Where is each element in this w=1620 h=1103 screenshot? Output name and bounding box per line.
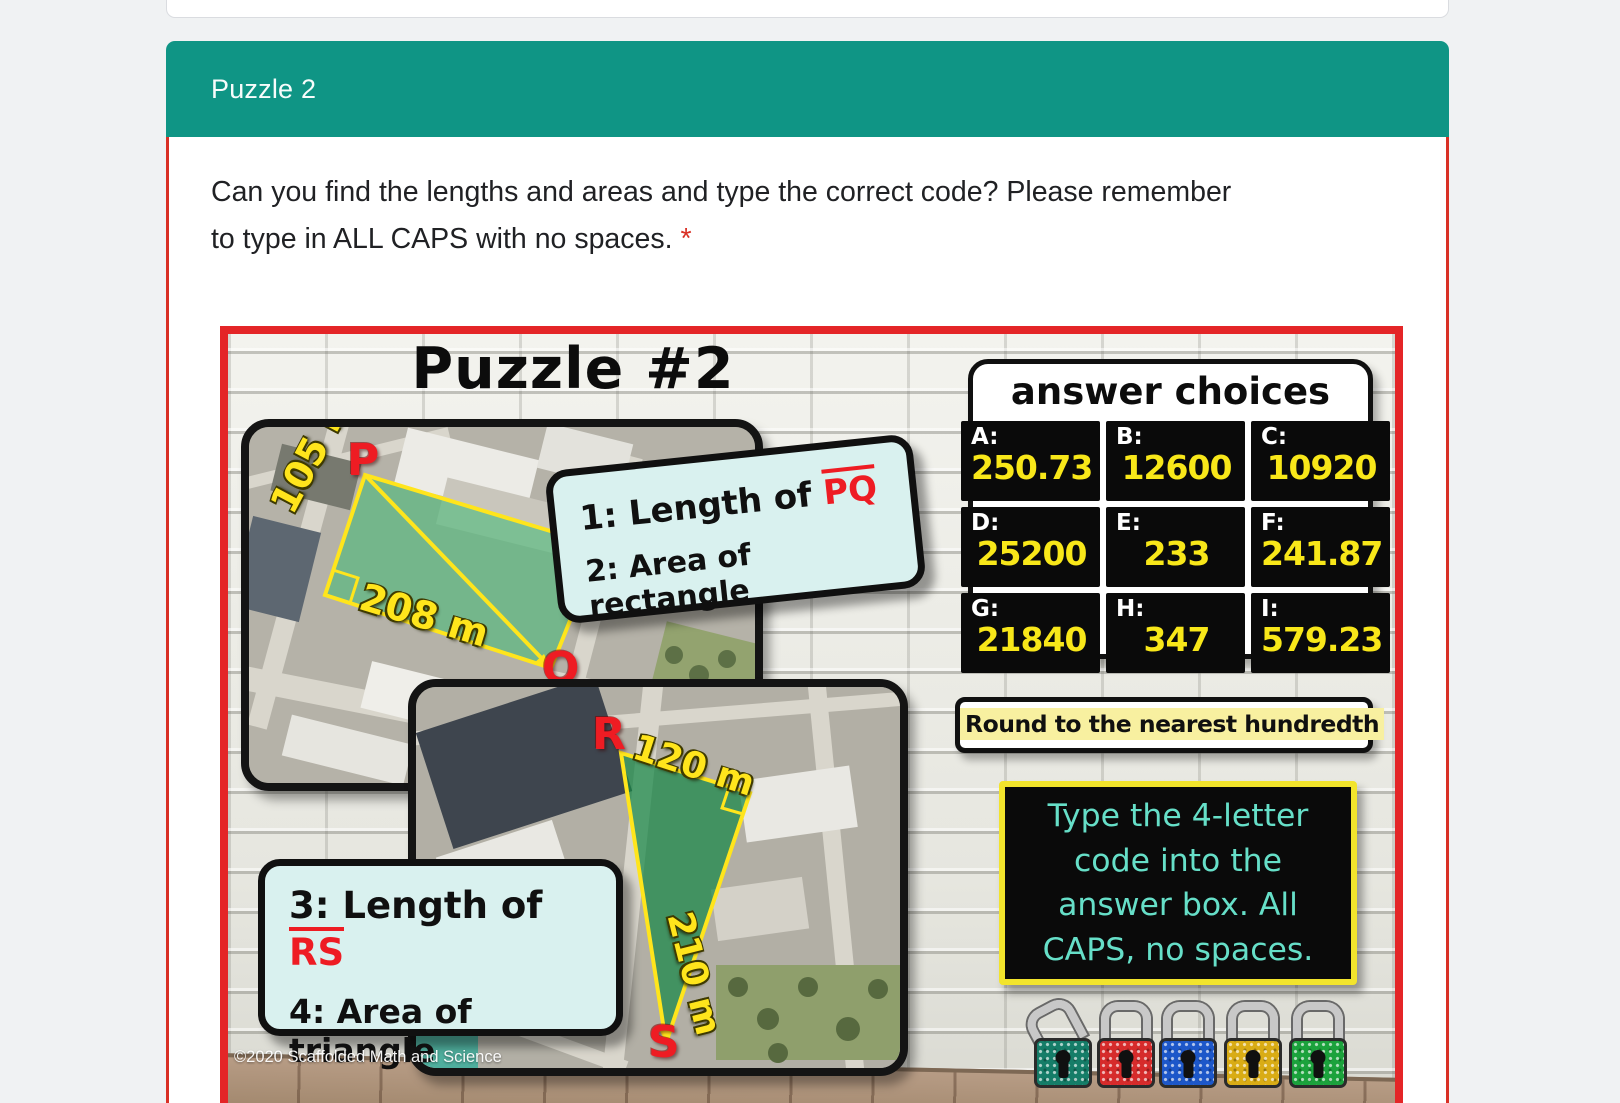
lock-body <box>1034 1038 1092 1088</box>
lock-body <box>1224 1038 1282 1088</box>
answer-cell: F:241.87 <box>1251 507 1390 587</box>
keyhole-icon <box>1119 1050 1134 1065</box>
question-line-2: to type in ALL CAPS with no spaces.* <box>211 216 1391 263</box>
answer-cell: C:10920 <box>1251 421 1390 501</box>
copyright-text: ©2020 Scaffolded Math and Science <box>234 1048 502 1067</box>
keyhole-icon <box>1246 1050 1261 1065</box>
answer-cell: G:21840 <box>961 593 1100 673</box>
answer-cell: I:579.23 <box>1251 593 1390 673</box>
lock-body <box>1159 1038 1217 1088</box>
google-form-page: Puzzle 2 Can you find the lengths and ar… <box>0 0 1620 1103</box>
task-note-triangle: 3: Length of RS 4: Area of triangle <box>258 859 623 1036</box>
question-text: Can you find the lengths and areas and t… <box>211 169 1391 263</box>
lock-body <box>1097 1038 1155 1088</box>
question-line-1: Can you find the lengths and areas and t… <box>211 169 1391 216</box>
red-lock-icon <box>1097 1002 1155 1094</box>
question-card: Can you find the lengths and areas and t… <box>166 137 1449 1103</box>
answer-cell: A:250.73 <box>961 421 1100 501</box>
question-card-header: Puzzle 2 <box>166 41 1449 137</box>
teal-lock-icon <box>1034 1002 1092 1094</box>
point-label-r: R <box>592 713 626 757</box>
rounding-instruction: Round to the nearest hundredth <box>955 697 1373 753</box>
keyhole-icon <box>1311 1050 1326 1065</box>
answer-choices-title: answer choices <box>973 370 1368 413</box>
point-label-s: S <box>648 1021 680 1065</box>
lock-body <box>1289 1038 1347 1088</box>
answer-grid: A:250.73 B:12600 C:10920 D:25200 E:233 F… <box>961 421 1390 673</box>
question-card-title: Puzzle 2 <box>211 74 316 105</box>
gold-lock-icon <box>1224 1002 1282 1094</box>
answer-cell: E:233 <box>1106 507 1245 587</box>
poster-title: Puzzle #2 <box>353 336 793 402</box>
required-asterisk: * <box>681 223 692 255</box>
answer-cell: H:347 <box>1106 593 1245 673</box>
green-lock-icon <box>1289 1002 1347 1094</box>
segment-rs-label: RS <box>289 927 344 972</box>
task-3-label: 3: Length of RS <box>289 884 592 974</box>
previous-question-card <box>166 0 1449 18</box>
answer-choices-panel: answer choices A:250.73 B:12600 C:10920 … <box>968 359 1373 659</box>
answer-cell: B:12600 <box>1106 421 1245 501</box>
point-label-p: P <box>347 439 379 483</box>
code-instruction-box: Type the 4-letter code into the answer b… <box>999 781 1357 985</box>
puzzle-image[interactable]: Puzzle #2 <box>220 326 1403 1103</box>
keyhole-icon <box>1181 1050 1196 1065</box>
answer-cell: D:25200 <box>961 507 1100 587</box>
blue-lock-icon <box>1159 1002 1217 1094</box>
segment-pq-label: PQ <box>821 464 879 511</box>
keyhole-icon <box>1056 1050 1071 1065</box>
